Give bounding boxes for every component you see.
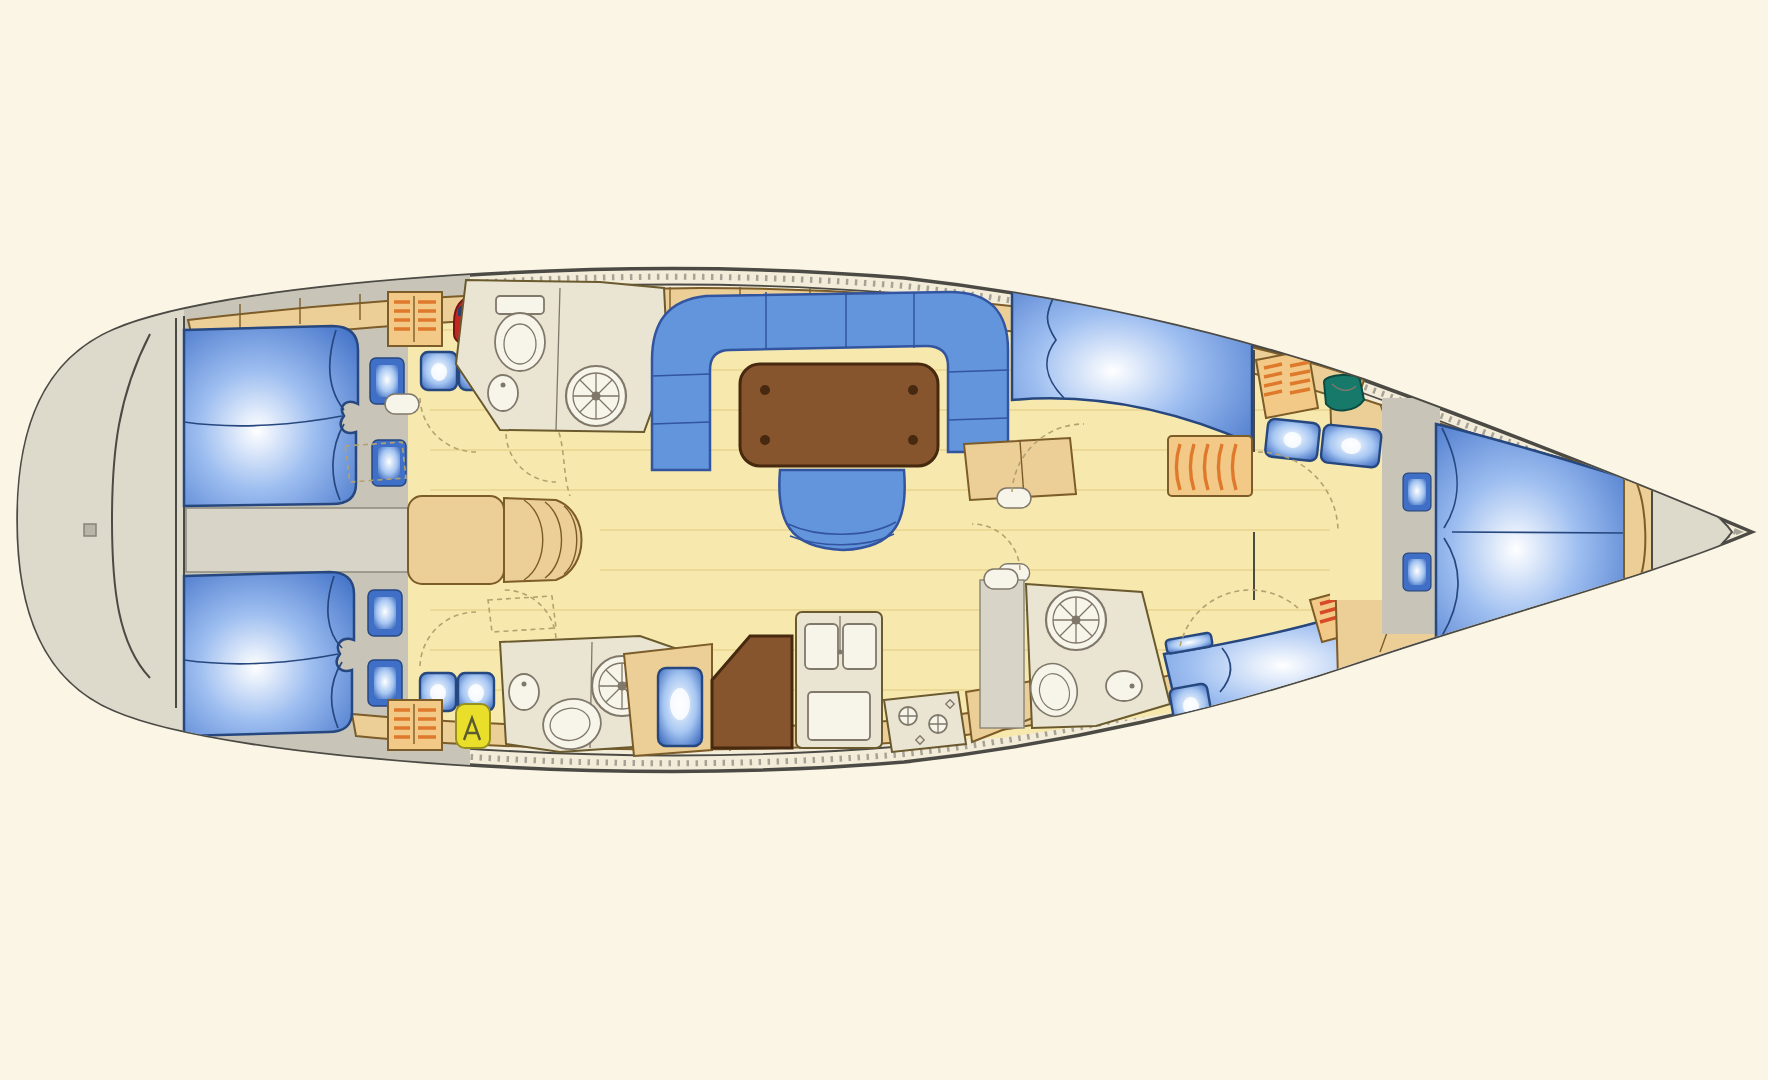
- orange-shelf-locker: [388, 292, 442, 346]
- shower-drain-icon: [566, 366, 626, 426]
- stove: [884, 692, 966, 752]
- engine-access-walkway: [186, 508, 410, 572]
- wardrobe: [1168, 436, 1252, 496]
- double-sink: [796, 612, 882, 748]
- portlight-icon: [1403, 553, 1431, 591]
- toilet-tank: [496, 296, 544, 314]
- door-leaf: [385, 394, 419, 414]
- head-room: [456, 280, 668, 432]
- door-leaf: [984, 569, 1018, 589]
- green-vanity-basin: [1324, 375, 1364, 410]
- salon-table: [740, 364, 938, 466]
- washbasin-icon: [1106, 671, 1142, 701]
- yacht-floor-plan-image: [0, 0, 1768, 1080]
- washbasin-icon: [509, 674, 539, 710]
- fridge: [658, 668, 702, 746]
- double-berth-aft-port: [184, 326, 358, 506]
- stern-swim-platform: [16, 280, 184, 760]
- boat-plan: [0, 0, 1768, 1080]
- v-cabin-side: [1382, 398, 1440, 634]
- counter-bin: [808, 692, 870, 740]
- head-wall: [980, 580, 1024, 728]
- storage-locker-seat: [421, 352, 457, 390]
- yellow-gear-locker: [456, 704, 490, 748]
- washbasin-icon: [488, 375, 518, 411]
- portlight-icon: [368, 590, 402, 636]
- deck-fitting: [84, 524, 96, 536]
- companionway-landing: [408, 496, 504, 584]
- storage-locker-seat: [1169, 683, 1213, 729]
- door-leaf: [997, 488, 1031, 508]
- portlight-icon: [1403, 473, 1431, 511]
- orange-shelf-locker: [388, 700, 442, 750]
- toilet-icon: [495, 313, 545, 371]
- shower-drain-icon: [1046, 590, 1106, 650]
